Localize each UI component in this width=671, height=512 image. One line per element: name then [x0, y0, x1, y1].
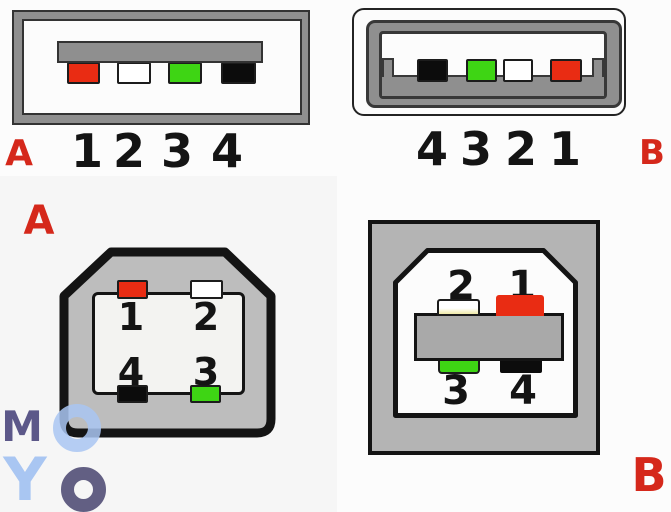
pin-red	[67, 62, 100, 84]
pin-black	[417, 59, 448, 82]
logo-letter-o-top	[53, 404, 101, 452]
pin-number-1: 1	[543, 126, 587, 172]
pin-green	[466, 59, 497, 82]
pin-number-2: 2	[499, 126, 543, 172]
usb-a-right-tongue-lip-left	[382, 58, 394, 77]
pin-white	[503, 59, 533, 82]
usb-a-left-tongue	[57, 41, 263, 63]
connector-label-b: B	[626, 452, 671, 498]
logo-letter-y: Y	[2, 450, 48, 510]
logo-letter-o-bottom	[61, 467, 106, 512]
pin-red	[550, 59, 582, 82]
pin-number-3: 3	[155, 128, 199, 174]
pin-red	[496, 295, 544, 316]
pin-number-3: 3	[454, 126, 498, 172]
usb-a-left-cavity	[22, 19, 302, 115]
pin-number-2: 2	[107, 128, 151, 174]
logo-letter-m: M	[0, 406, 44, 448]
pin-white	[437, 299, 480, 316]
pin-number-4: 4	[501, 371, 545, 411]
usb-b-socket-tongue	[414, 313, 564, 361]
pin-number-1: 1	[65, 128, 109, 174]
pin-number-2: 2	[184, 298, 228, 336]
pin-number-4: 4	[410, 126, 454, 172]
pin-black	[221, 62, 256, 84]
pin-number-4: 4	[205, 128, 249, 174]
connector-label-b: B	[636, 136, 668, 170]
connector-label-a: A	[16, 201, 62, 241]
connector-label-a: A	[3, 136, 35, 172]
pin-white	[117, 62, 151, 84]
pin-green	[168, 62, 202, 84]
pin-number-3: 3	[184, 353, 228, 391]
pin-number-4: 4	[109, 353, 153, 391]
pin-number-1: 1	[109, 298, 153, 336]
usb-a-right-tongue-lip-right	[592, 58, 604, 77]
usb-pinout-diagram: 1 2 3 4 A 4 3 2 1 B A 1 2 4 3 2 1 3 4 B …	[0, 0, 671, 512]
pin-number-3: 3	[434, 371, 478, 411]
